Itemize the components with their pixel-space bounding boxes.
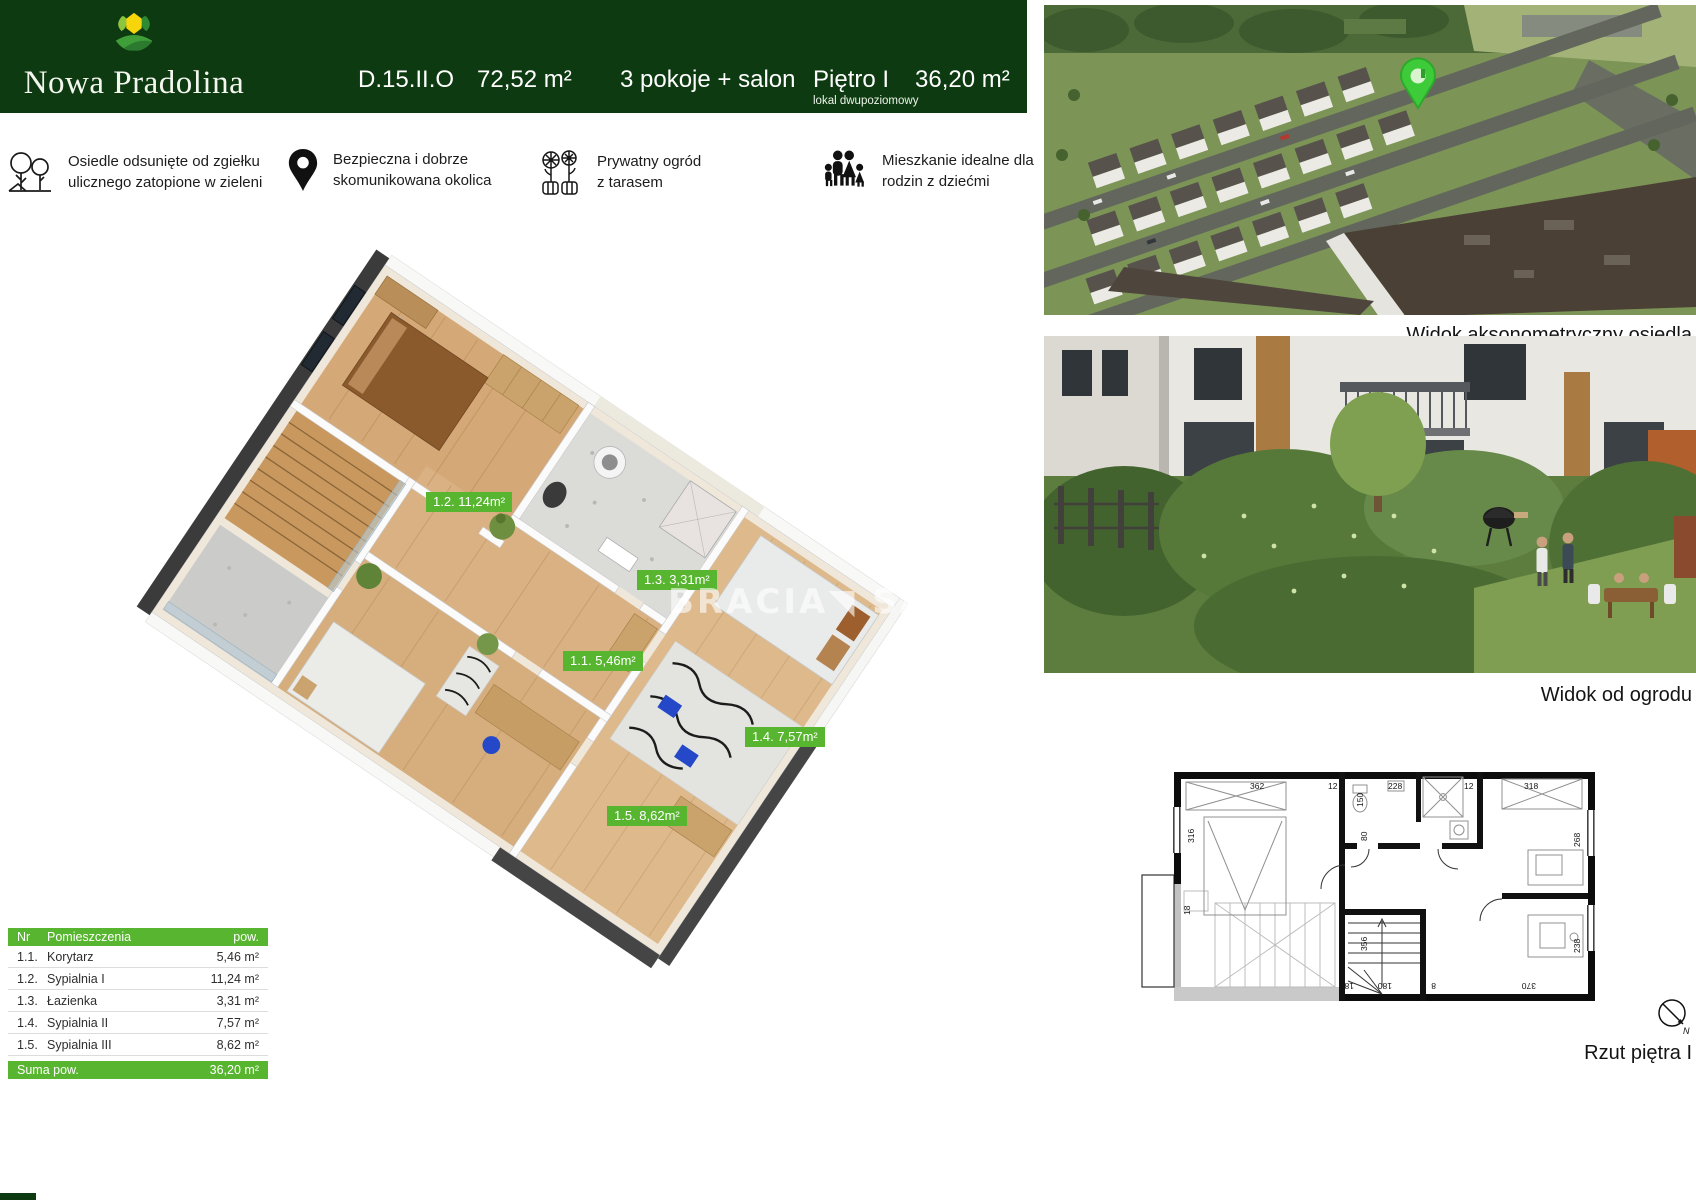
table-row: 1.4. Sypialnia II 7,57 m² <box>8 1012 268 1034</box>
feature-text: Mieszkanie idealne dla rodzin z dziećmi <box>882 150 1034 192</box>
col-area: pow. <box>233 930 268 944</box>
cell-name: Sypialnia II <box>47 1016 217 1030</box>
room-label-1-5: 1.5. 8,62m² <box>607 806 687 826</box>
aerial-photo <box>1044 5 1696 320</box>
room-label-1-4: 1.4. 7,57m² <box>745 727 825 747</box>
caption-garden: Widok od ogrodu <box>1044 684 1692 707</box>
cell-area: 5,46 m² <box>217 950 268 964</box>
map-pin-icon <box>287 148 319 192</box>
feature-text: Bezpieczna i dobrze skomunikowana okolic… <box>333 149 491 191</box>
aerial-render <box>1044 5 1696 315</box>
feature-garden: Prywatny ogród z tarasem <box>537 148 701 196</box>
dim-label: 150 <box>1355 793 1365 807</box>
feature-text: Prywatny ogród z tarasem <box>597 151 701 193</box>
cell-name: Sypialnia III <box>47 1038 217 1052</box>
header-bar: Nowa Pradolina D.15.II.O 72,52 m² 3 poko… <box>0 0 1027 113</box>
col-nr: Nr <box>8 930 47 944</box>
corner-mark <box>0 1193 36 1200</box>
unit-floor-area: 36,20 m² <box>915 66 1010 94</box>
unit-floor-note: lokal dwupoziomowy <box>813 95 918 107</box>
dim-label: 80 <box>1359 831 1369 841</box>
feature-line: Osiedle odsunięte od zgiełku <box>68 151 262 172</box>
unit-floor: Piętro I <box>813 66 889 94</box>
feature-family: Mieszkanie idealne dla rodzin z dziećmi <box>820 148 1034 194</box>
trees-icon <box>6 148 54 196</box>
brand-name: Nowa Pradolina <box>0 65 268 102</box>
compass: N <box>1648 993 1696 1048</box>
dim-label: 8 <box>1431 981 1436 991</box>
dim-label: 316 <box>1186 829 1196 843</box>
dim-label: 370 <box>1522 981 1536 991</box>
watermark: BRACIA◥ SAD <box>668 582 960 622</box>
cell-name: Korytarz <box>47 950 217 964</box>
feature-text: Osiedle odsunięte od zgiełku ulicznego z… <box>68 151 262 193</box>
cell-name: Łazienka <box>47 994 217 1008</box>
dim-label: 356 <box>1359 937 1369 951</box>
feature-line: rodzin z dziećmi <box>882 171 1034 192</box>
feature-location: Bezpieczna i dobrze skomunikowana okolic… <box>287 148 491 192</box>
north-compass-icon: N <box>1648 993 1696 1043</box>
floorplan-2d-drawing: 362 12 150 228 12 318 316 268 18 80 356 … <box>1120 755 1696 1005</box>
dim-label: 268 <box>1572 833 1582 847</box>
garden-flowers-icon <box>537 148 583 196</box>
feature-line: ulicznego zatopione w zieleni <box>68 172 262 193</box>
table-row: 1.5. Sypialnia III 8,62 m² <box>8 1034 268 1056</box>
floorplan-3d: 1.1. 5,46m² 1.2. 11,24m² 1.3. 3,31m² 1.4… <box>120 230 920 990</box>
unit-total-area: 72,52 m² <box>477 66 572 94</box>
brand-block: Nowa Pradolina <box>0 10 268 102</box>
feature-green-estate: Osiedle odsunięte od zgiełku ulicznego z… <box>6 148 262 196</box>
table-row: 1.1. Korytarz 5,46 m² <box>8 946 268 968</box>
table-row: 1.3. Łazienka 3,31 m² <box>8 990 268 1012</box>
dim-label: 228 <box>1388 781 1402 791</box>
col-name: Pomieszczenia <box>47 930 233 944</box>
cell-nr: 1.2. <box>8 972 47 986</box>
dim-label: 18 <box>1182 905 1192 915</box>
floorplan-2d: 362 12 150 228 12 318 316 268 18 80 356 … <box>1120 755 1696 1010</box>
compass-letter: N <box>1683 1026 1690 1036</box>
table-total-row: Suma pow. 36,20 m² <box>8 1061 268 1079</box>
cell-nr: 1.1. <box>8 950 47 964</box>
cell-name: Sypialnia I <box>47 972 211 986</box>
dim-label: 18 <box>1344 981 1354 991</box>
dim-label: 238 <box>1572 939 1582 953</box>
garden-photo <box>1044 336 1696 678</box>
total-label: Suma pow. <box>8 1063 210 1077</box>
family-icon <box>820 148 868 194</box>
feature-line: skomunikowana okolica <box>333 170 491 191</box>
dim-label: 318 <box>1524 781 1538 791</box>
brand-logo-icon <box>111 10 157 58</box>
feature-line: Prywatny ogród <box>597 151 701 172</box>
cell-area: 3,31 m² <box>217 994 268 1008</box>
cell-nr: 1.3. <box>8 994 47 1008</box>
cell-area: 8,62 m² <box>217 1038 268 1052</box>
cell-area: 7,57 m² <box>217 1016 268 1030</box>
room-label-1-1: 1.1. 5,46m² <box>563 651 643 671</box>
feature-line: Mieszkanie idealne dla <box>882 150 1034 171</box>
room-table: Nr Pomieszczenia pow. 1.1. Korytarz 5,46… <box>8 928 268 1079</box>
table-header-row: Nr Pomieszczenia pow. <box>8 928 268 946</box>
dim-label: 12 <box>1464 781 1474 791</box>
garden-render <box>1044 336 1696 673</box>
feature-line: Bezpieczna i dobrze <box>333 149 491 170</box>
dim-label: 362 <box>1250 781 1264 791</box>
caption-plan2d: Rzut piętra I <box>1044 1042 1692 1065</box>
unit-rooms: 3 pokoje + salon <box>620 66 795 94</box>
cell-nr: 1.4. <box>8 1016 47 1030</box>
feature-line: z tarasem <box>597 172 701 193</box>
unit-code: D.15.II.O <box>358 66 454 94</box>
room-label-1-2: 1.2. 11,24m² <box>426 492 512 512</box>
total-area: 36,20 m² <box>210 1063 268 1077</box>
dim-label: 180 <box>1378 981 1392 991</box>
cell-nr: 1.5. <box>8 1038 47 1052</box>
dim-label: 12 <box>1328 781 1338 791</box>
table-row: 1.2. Sypialnia I 11,24 m² <box>8 968 268 990</box>
cell-area: 11,24 m² <box>211 972 268 986</box>
